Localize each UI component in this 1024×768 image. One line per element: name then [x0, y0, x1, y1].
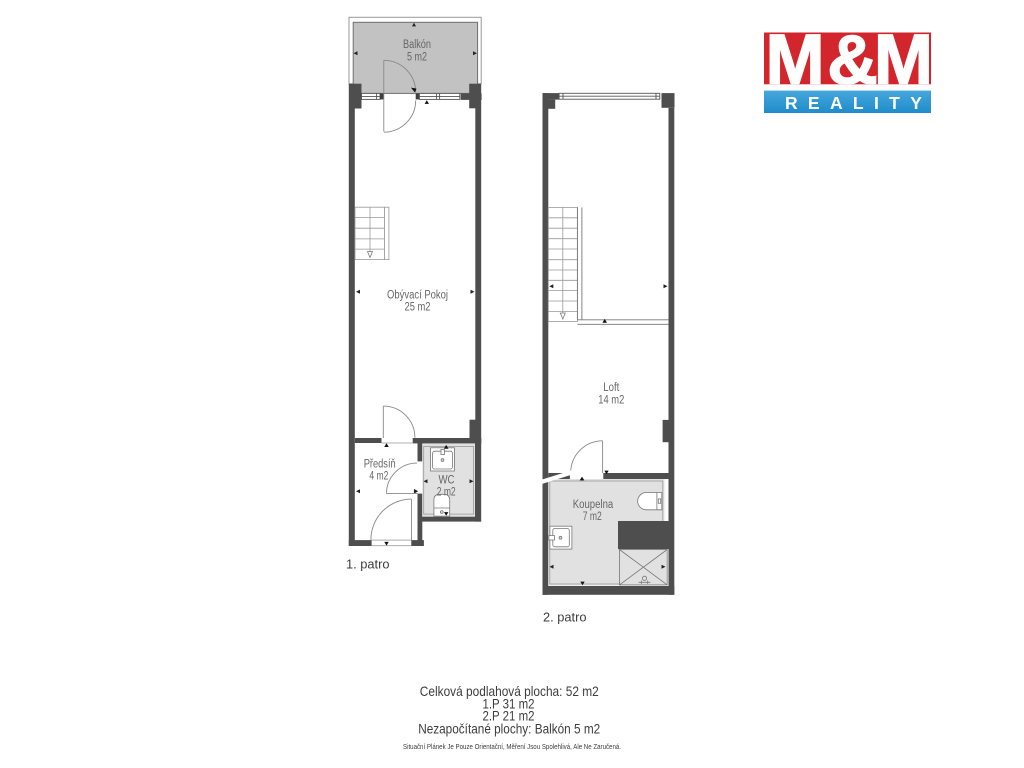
svg-text:2 m2: 2 m2 — [437, 487, 456, 499]
svg-text:2. patro: 2. patro — [543, 611, 587, 625]
svg-text:Předsíň: Předsíň — [364, 458, 396, 470]
svg-text:7 m2: 7 m2 — [583, 511, 602, 523]
svg-text:1. patro: 1. patro — [346, 558, 390, 572]
svg-text:WC: WC — [439, 474, 455, 486]
svg-text:REALITY: REALITY — [785, 93, 932, 113]
svg-text:4 m2: 4 m2 — [369, 470, 388, 482]
svg-text:Nezapočítané plochy: Balkón 5: Nezapočítané plochy: Balkón 5 m2 — [418, 721, 600, 737]
svg-text:5 m2: 5 m2 — [407, 52, 427, 64]
svg-text:Koupelna: Koupelna — [573, 499, 614, 511]
svg-text:Balkón: Balkón — [403, 39, 431, 51]
svg-text:Obývací Pokoj: Obývací Pokoj — [387, 290, 448, 302]
svg-text:Situační Plánek Je Pouze Orien: Situační Plánek Je Pouze Orientační, Měř… — [403, 742, 621, 751]
svg-text:Loft: Loft — [603, 382, 620, 394]
svg-text:14 m2: 14 m2 — [598, 394, 624, 406]
svg-text:25 m2: 25 m2 — [405, 302, 431, 314]
